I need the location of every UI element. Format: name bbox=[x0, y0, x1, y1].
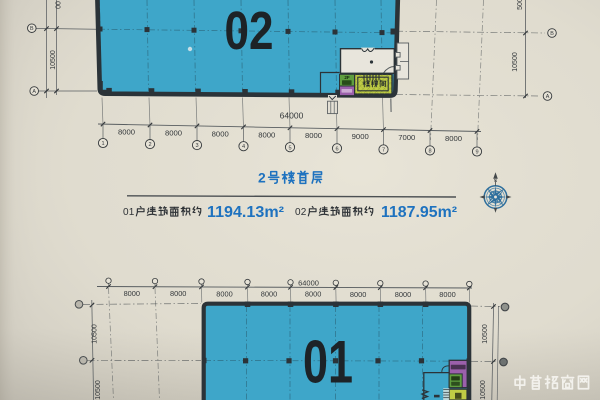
svg-text:8000: 8000 bbox=[118, 128, 135, 137]
svg-text:7: 7 bbox=[382, 147, 385, 153]
svg-text:8000: 8000 bbox=[212, 129, 229, 138]
svg-text:4: 4 bbox=[242, 144, 245, 150]
svg-text:02: 02 bbox=[295, 207, 307, 218]
svg-text:64000: 64000 bbox=[298, 278, 319, 287]
svg-text:01: 01 bbox=[123, 207, 135, 218]
svg-text:10500: 10500 bbox=[92, 324, 99, 344]
svg-text:8000: 8000 bbox=[165, 129, 182, 138]
svg-text:8000: 8000 bbox=[439, 290, 455, 299]
svg-text:3: 3 bbox=[195, 143, 198, 149]
svg-text:7000: 7000 bbox=[398, 133, 415, 142]
svg-text:10500: 10500 bbox=[95, 380, 102, 400]
svg-text:8000: 8000 bbox=[124, 289, 140, 298]
svg-text:00: 00 bbox=[56, 1, 63, 9]
svg-text:64000: 64000 bbox=[280, 111, 304, 121]
svg-text:1187.95m²: 1187.95m² bbox=[381, 204, 457, 221]
svg-text:8000: 8000 bbox=[305, 290, 321, 299]
svg-text:10500: 10500 bbox=[512, 52, 519, 72]
svg-text:9: 9 bbox=[475, 150, 478, 156]
svg-text:B: B bbox=[550, 31, 554, 37]
svg-text:8000: 8000 bbox=[261, 290, 277, 299]
svg-text:8000: 8000 bbox=[395, 290, 411, 299]
svg-text:01: 01 bbox=[303, 329, 353, 396]
svg-text:8000: 8000 bbox=[350, 290, 366, 299]
svg-text:02: 02 bbox=[225, 1, 274, 61]
svg-text:500: 500 bbox=[517, 0, 524, 10]
svg-text:8000: 8000 bbox=[258, 130, 275, 139]
svg-text:2: 2 bbox=[148, 142, 151, 148]
svg-text:2: 2 bbox=[258, 169, 266, 185]
svg-text:N: N bbox=[494, 178, 497, 183]
svg-text:8000: 8000 bbox=[216, 289, 232, 298]
svg-text:8000: 8000 bbox=[305, 131, 322, 140]
svg-text:B: B bbox=[30, 26, 34, 32]
svg-text:6: 6 bbox=[335, 146, 338, 152]
svg-text:1: 1 bbox=[101, 141, 104, 147]
svg-text:10500: 10500 bbox=[480, 380, 487, 400]
svg-text:8: 8 bbox=[428, 148, 431, 154]
svg-text:8000: 8000 bbox=[445, 134, 462, 143]
svg-text:8000: 8000 bbox=[170, 289, 186, 298]
svg-text:A: A bbox=[32, 89, 36, 95]
svg-text:5: 5 bbox=[288, 145, 291, 151]
svg-text:1194.13m²: 1194.13m² bbox=[207, 204, 284, 221]
svg-text:2F: 2F bbox=[344, 75, 350, 80]
svg-text:10500: 10500 bbox=[482, 324, 489, 344]
svg-text:10500: 10500 bbox=[50, 50, 57, 70]
svg-text:9000: 9000 bbox=[352, 132, 369, 141]
svg-text:A: A bbox=[546, 94, 550, 100]
